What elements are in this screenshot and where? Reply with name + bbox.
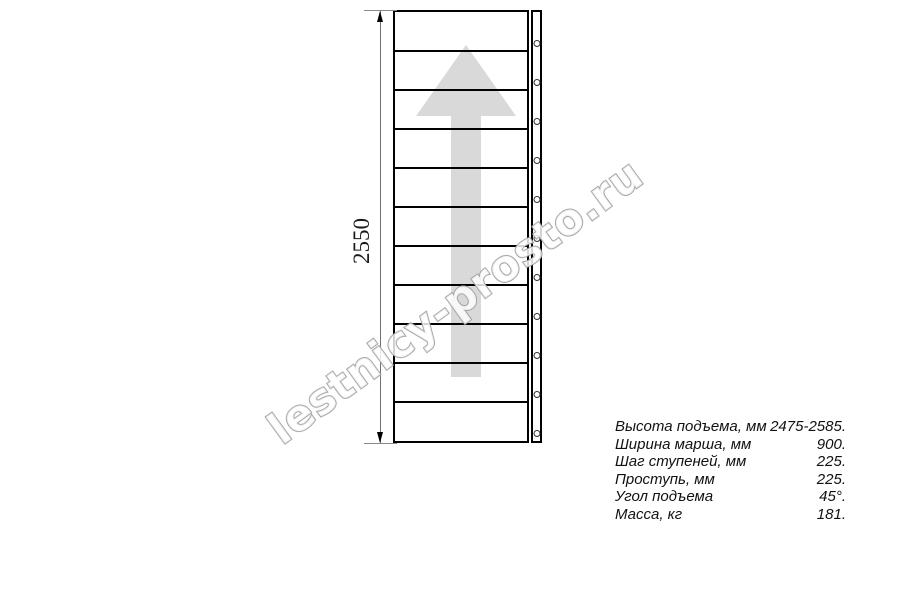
- bolt-circle: [533, 79, 540, 86]
- bolt-circle: [533, 352, 540, 359]
- spec-row: Ширина марша, мм 900.: [615, 436, 846, 454]
- bolt-circle: [533, 430, 540, 437]
- dimension-line: [380, 11, 381, 443]
- spec-label: Ширина марша, мм: [615, 436, 751, 454]
- spec-label: Шаг ступеней, мм: [615, 453, 746, 471]
- step-divider: [395, 323, 527, 325]
- spec-value: 2475-2585.: [770, 418, 846, 436]
- step-divider: [395, 362, 527, 364]
- spec-row: Проступь, мм 225.: [615, 471, 846, 489]
- spec-label: Высота подъема, мм: [615, 418, 767, 436]
- step-divider: [395, 167, 527, 169]
- step-divider: [395, 245, 527, 247]
- spec-row: Угол подъема 45°.: [615, 488, 846, 506]
- spec-label: Проступь, мм: [615, 471, 715, 489]
- spec-value: 900.: [817, 436, 846, 454]
- dimension-arrow-up-icon: [377, 11, 383, 22]
- spec-label: Угол подъема: [615, 488, 713, 506]
- bolt-circle: [533, 40, 540, 47]
- bolt-circle: [533, 118, 540, 125]
- bolt-circle: [533, 196, 540, 203]
- step-divider: [395, 128, 527, 130]
- extension-line-bottom: [364, 443, 397, 444]
- spec-label: Масса, кг: [615, 506, 682, 524]
- step-divider: [395, 401, 527, 403]
- step-divider: [395, 284, 527, 286]
- spec-value: 181.: [817, 506, 846, 524]
- bolt-circle: [533, 391, 540, 398]
- drawing-canvas: 2550 lestnicy-prosto.ru Высота подъема, …: [0, 0, 900, 600]
- dimension-arrow-down-icon: [377, 432, 383, 443]
- bolt-circle: [533, 157, 540, 164]
- spec-row: Масса, кг 181.: [615, 506, 846, 524]
- spec-value: 45°.: [819, 488, 846, 506]
- spec-value: 225.: [817, 453, 846, 471]
- step-divider: [395, 206, 527, 208]
- spec-row: Высота подъема, мм 2475-2585.: [615, 418, 846, 436]
- spec-value: 225.: [817, 471, 846, 489]
- bolt-circle: [533, 313, 540, 320]
- stair-steps: [393, 10, 529, 443]
- stair-stringer: [531, 10, 542, 443]
- bolt-circle: [533, 274, 540, 281]
- step-divider: [395, 50, 527, 52]
- specs-table: Высота подъема, мм 2475-2585. Ширина мар…: [615, 418, 846, 524]
- spec-row: Шаг ступеней, мм 225.: [615, 453, 846, 471]
- bolt-circle: [533, 235, 540, 242]
- step-divider: [395, 89, 527, 91]
- dimension-label: 2550: [349, 191, 375, 291]
